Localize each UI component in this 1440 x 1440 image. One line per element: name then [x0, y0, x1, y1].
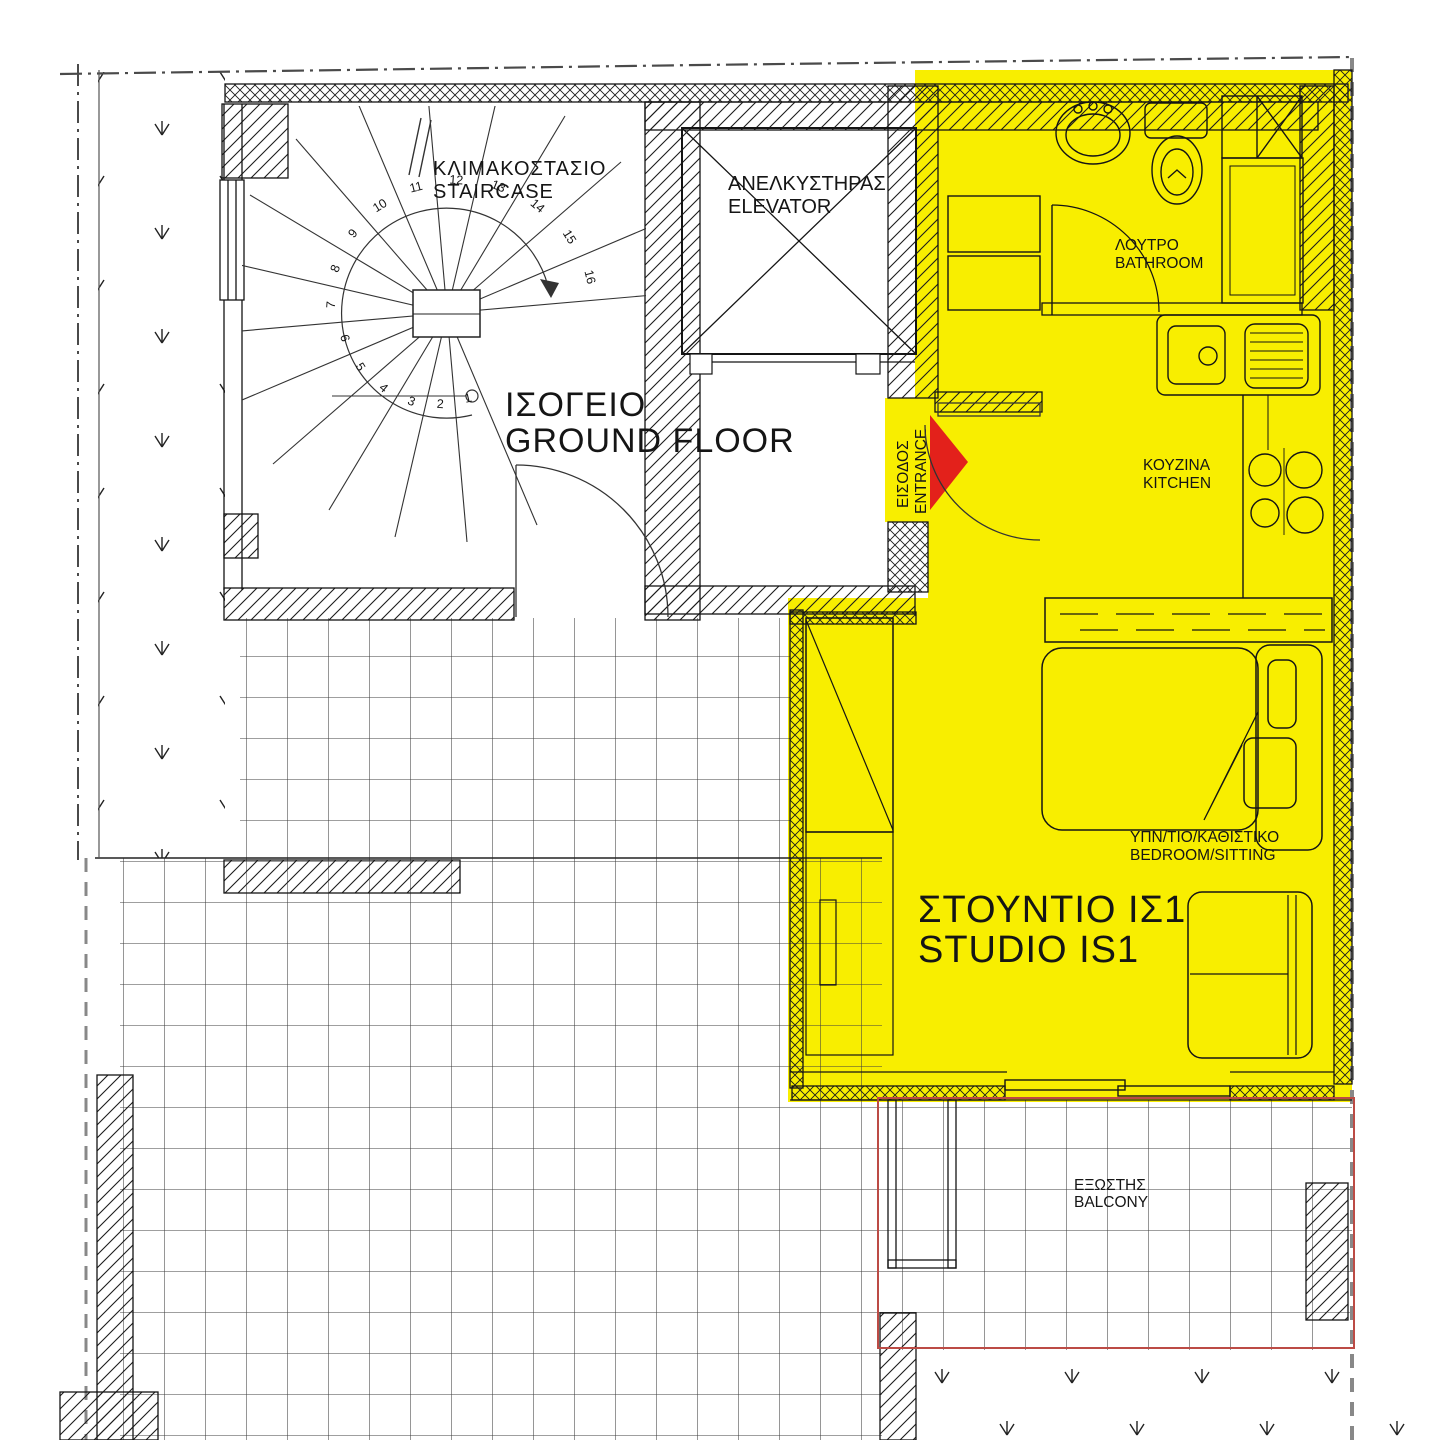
insulation-studio-west [790, 610, 803, 1088]
insulation-right [1334, 70, 1352, 1084]
floor-plan-canvas: 1 2 3 4 5 6 7 8 9 10 11 12 13 14 15 16 Κ… [0, 0, 1440, 1440]
stair-break-mark [409, 118, 431, 177]
stair-number: 10 [370, 196, 389, 215]
bedroom-label-el: ΥΠΝ/ΤΙΟ/ΚΑΘΙΣΤΙΚΟ [1130, 829, 1279, 846]
balcony-label-en: BALCONY [1074, 1194, 1148, 1211]
bedroom-label-en: BEDROOM/SITTING [1130, 847, 1276, 864]
stair-number: 7 [324, 301, 338, 309]
vegetation-left [98, 72, 225, 858]
entrance-label-el: ΕΙΣΟΔΟΣ [895, 440, 912, 508]
floor-title-el: ΙΣΟΓΕΙΟ [505, 386, 646, 424]
stair-walk-arrow-icon [540, 279, 559, 298]
wall-right-upper [1300, 86, 1334, 310]
stair-number: 6 [337, 333, 352, 343]
floor-title-en: GROUND FLOOR [505, 422, 795, 460]
terrace-beam [224, 860, 460, 893]
vegetation-bottom [902, 1352, 1440, 1440]
kitchen-label-en: KITCHEN [1143, 475, 1211, 492]
stair-number: 8 [327, 263, 343, 275]
balcony-wall-strip [880, 1313, 916, 1440]
bathroom-label-el: ΛΟΥΤΡΟ [1115, 237, 1179, 254]
stair-number: 9 [345, 226, 360, 240]
wall-corner-block [222, 104, 288, 178]
elevator-shaft: ΑΝΕΛΚΥΣΤΗΡΑΣ ELEVATOR [682, 128, 916, 374]
entrance-label-en: ENTRANCE [913, 429, 930, 514]
wall-studio-left-lower [888, 522, 928, 592]
stair-number: 5 [353, 360, 369, 373]
stair-number: 2 [436, 397, 444, 411]
wall-block-left [224, 514, 258, 558]
terrace-wall-strip [97, 1075, 133, 1440]
wall-entrance-top [935, 392, 1042, 412]
stair-number: 16 [581, 269, 598, 286]
terrace-tiles-mid [240, 618, 790, 858]
wall-hall-bottom [645, 586, 915, 614]
wall-staircase-bottom [224, 588, 514, 620]
studio-label-en: STUDIO IS1 [918, 929, 1139, 971]
balcony-tiles [880, 1100, 1352, 1350]
wall-top [645, 102, 1318, 130]
bathroom-label-en: BATHROOM [1115, 255, 1203, 272]
staircase-label-en: STAIRCASE [433, 181, 554, 203]
stair-number: 15 [560, 227, 579, 246]
window-staircase [220, 180, 244, 300]
wall-top-insulation [225, 84, 1348, 102]
terrace-tiles-lower [120, 858, 882, 1440]
kitchen-label-el: ΚΟΥΖΙΝΑ [1143, 457, 1211, 474]
stair-number: 1 [463, 390, 473, 405]
balcony-column [1306, 1183, 1348, 1320]
elevator-label-el: ΑΝΕΛΚΥΣΤΗΡΑΣ [728, 173, 886, 195]
elevator-label-en: ELEVATOR [728, 196, 831, 218]
studio-label-el: ΣΤΟΥΝΤΙΟ ΙΣ1 [918, 889, 1186, 931]
staircase-label-el: ΚΛΙΜΑΚΟΣΤΑΣΙΟ [433, 158, 606, 180]
stair-number: 11 [408, 179, 424, 196]
balcony-label-el: ΕΞΩΣΤΗΣ [1074, 1177, 1146, 1194]
terrace-corner-block [60, 1392, 158, 1440]
